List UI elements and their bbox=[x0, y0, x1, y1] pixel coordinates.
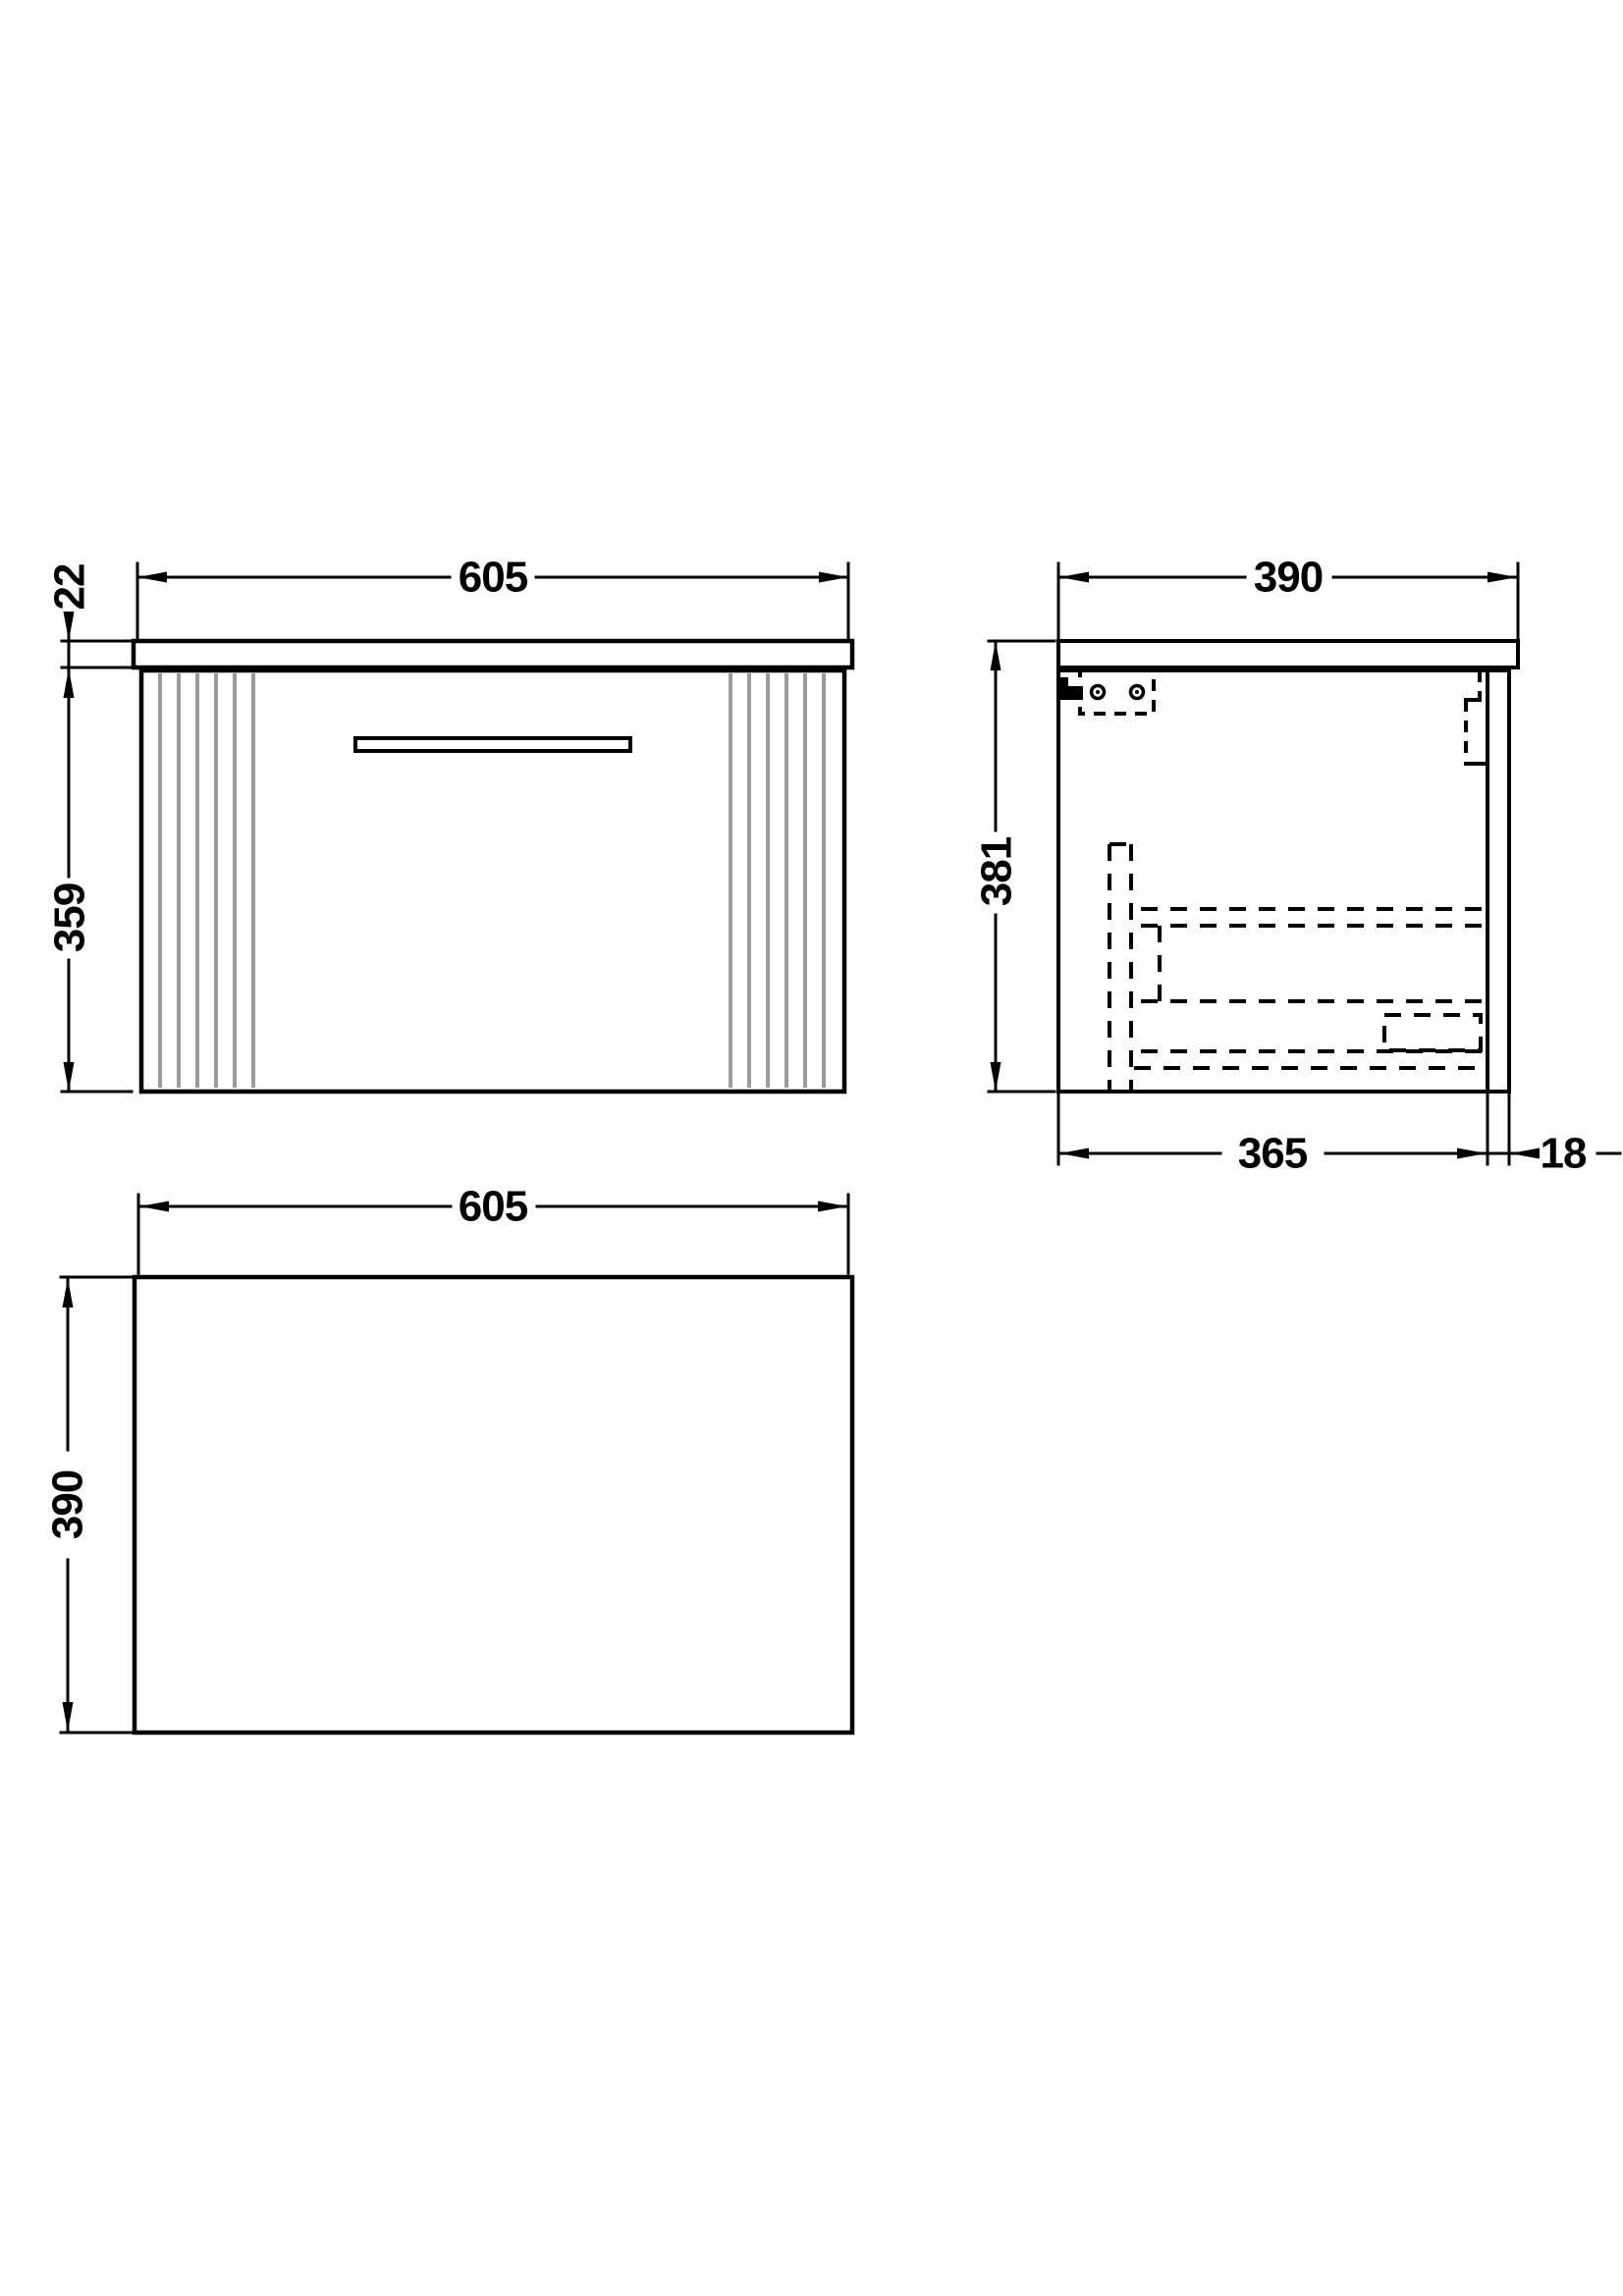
arrowhead bbox=[64, 1062, 75, 1092]
arrowhead bbox=[63, 1278, 74, 1308]
back-panel-thickness-label: 18 bbox=[1541, 1130, 1587, 1178]
drawer-handle bbox=[355, 738, 630, 751]
drawer-hidden-lines bbox=[1109, 844, 1487, 1092]
plan-depth-label: 390 bbox=[44, 1470, 92, 1539]
front-worktop-thickness-dimension: 22 bbox=[46, 564, 133, 667]
vanity-technical-drawing: 605 22 359 bbox=[0, 0, 1623, 2296]
front-width-dimension: 605 bbox=[137, 554, 848, 639]
arrowhead bbox=[1510, 1148, 1540, 1159]
front-worktop bbox=[134, 641, 852, 667]
drawing-sheet: 605 22 359 bbox=[0, 0, 1623, 2296]
worktop-thickness-label: 22 bbox=[46, 564, 94, 611]
side-bottom-dimensions: 365 18 bbox=[1058, 1092, 1620, 1178]
arrowhead bbox=[818, 1201, 847, 1212]
arrowhead bbox=[991, 1062, 1001, 1092]
side-depth-label: 390 bbox=[1254, 554, 1323, 602]
front-width-label: 605 bbox=[459, 554, 528, 602]
arrowhead bbox=[64, 668, 75, 698]
arrowhead bbox=[139, 1201, 169, 1212]
plan-worktop-outline bbox=[135, 1277, 852, 1733]
side-internal-depth-label: 365 bbox=[1238, 1130, 1308, 1178]
wall-bracket bbox=[1059, 670, 1154, 714]
plan-width-label: 605 bbox=[459, 1183, 528, 1231]
plan-depth-dimension: 390 bbox=[44, 1277, 133, 1733]
arrowhead bbox=[1059, 572, 1089, 583]
arrowhead bbox=[137, 572, 167, 583]
arrowhead bbox=[1488, 572, 1517, 583]
front-height-dimension: 359 bbox=[46, 668, 133, 1092]
arrowhead bbox=[819, 572, 848, 583]
front-view: 605 22 359 bbox=[46, 554, 853, 1093]
arrowhead bbox=[1457, 1148, 1487, 1159]
screw-center bbox=[1096, 690, 1100, 694]
back-panel-notch bbox=[1466, 670, 1488, 764]
arrowhead bbox=[64, 612, 75, 641]
side-view: 390 381 365 18 bbox=[973, 554, 1621, 1178]
plan-width-dimension: 605 bbox=[138, 1183, 848, 1274]
side-worktop bbox=[1058, 641, 1518, 667]
drawer-runner-bracket bbox=[1384, 1015, 1481, 1050]
screw-center bbox=[1135, 690, 1139, 694]
arrowhead bbox=[991, 641, 1001, 670]
plan-view: 605 390 bbox=[44, 1183, 853, 1734]
front-height-label: 359 bbox=[46, 883, 94, 952]
side-height-dimension: 381 bbox=[973, 641, 1055, 1092]
side-depth-dimension: 390 bbox=[1058, 554, 1518, 640]
front-cabinet-body bbox=[141, 670, 844, 1092]
arrowhead bbox=[63, 1702, 74, 1732]
wall-hook-profile bbox=[1059, 677, 1083, 700]
arrowhead bbox=[1059, 1148, 1089, 1159]
side-height-label: 381 bbox=[973, 836, 1021, 906]
